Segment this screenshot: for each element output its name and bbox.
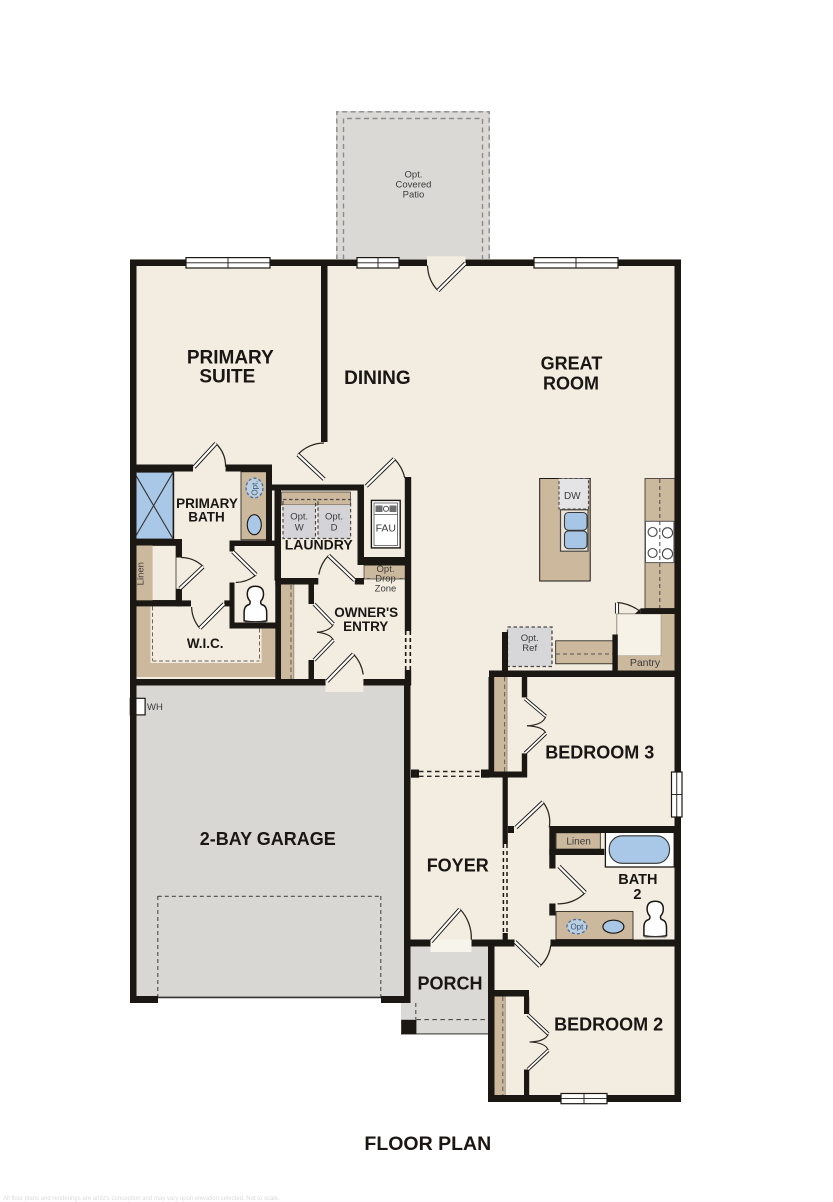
svg-text:WH: WH — [147, 702, 163, 713]
svg-text:OWNER'S: OWNER'S — [334, 605, 398, 620]
svg-text:Zone: Zone — [375, 583, 397, 594]
svg-text:ROOM: ROOM — [543, 373, 599, 393]
svg-text:Linen: Linen — [566, 837, 590, 848]
svg-text:Opt: Opt — [570, 922, 584, 931]
svg-text:ENTRY: ENTRY — [343, 619, 388, 634]
svg-text:BEDROOM 2: BEDROOM 2 — [554, 1015, 663, 1035]
svg-text:BEDROOM 3: BEDROOM 3 — [545, 742, 654, 762]
svg-text:FLOOR PLAN: FLOOR PLAN — [364, 1133, 491, 1155]
svg-text:Opt.: Opt. — [250, 480, 259, 495]
svg-text:2: 2 — [633, 887, 641, 903]
svg-text:BATH: BATH — [188, 510, 225, 525]
svg-text:Linen: Linen — [136, 562, 147, 585]
svg-text:FOYER: FOYER — [427, 856, 489, 876]
svg-text:GREAT: GREAT — [541, 354, 603, 374]
svg-text:BATH: BATH — [618, 872, 657, 888]
svg-text:W: W — [295, 523, 304, 534]
svg-text:D: D — [331, 523, 338, 534]
svg-text:PRIMARY: PRIMARY — [187, 347, 274, 368]
svg-text:DW: DW — [564, 491, 581, 502]
svg-text:Patio: Patio — [403, 189, 425, 200]
svg-text:2-BAY GARAGE: 2-BAY GARAGE — [200, 829, 336, 849]
svg-text:All floor plans and renderings: All floor plans and renderings are artis… — [3, 1196, 280, 1202]
svg-text:Ref: Ref — [522, 643, 537, 654]
svg-text:PORCH: PORCH — [417, 974, 482, 994]
svg-text:W.I.C.: W.I.C. — [187, 636, 224, 651]
svg-text:Opt.: Opt. — [325, 512, 343, 523]
svg-text:Opt.: Opt. — [290, 512, 308, 523]
svg-text:FAU: FAU — [376, 523, 396, 535]
svg-text:LAUNDRY: LAUNDRY — [285, 537, 354, 553]
svg-text:Pantry: Pantry — [630, 657, 661, 669]
svg-text:DINING: DINING — [344, 368, 411, 389]
svg-text:SUITE: SUITE — [199, 366, 255, 387]
